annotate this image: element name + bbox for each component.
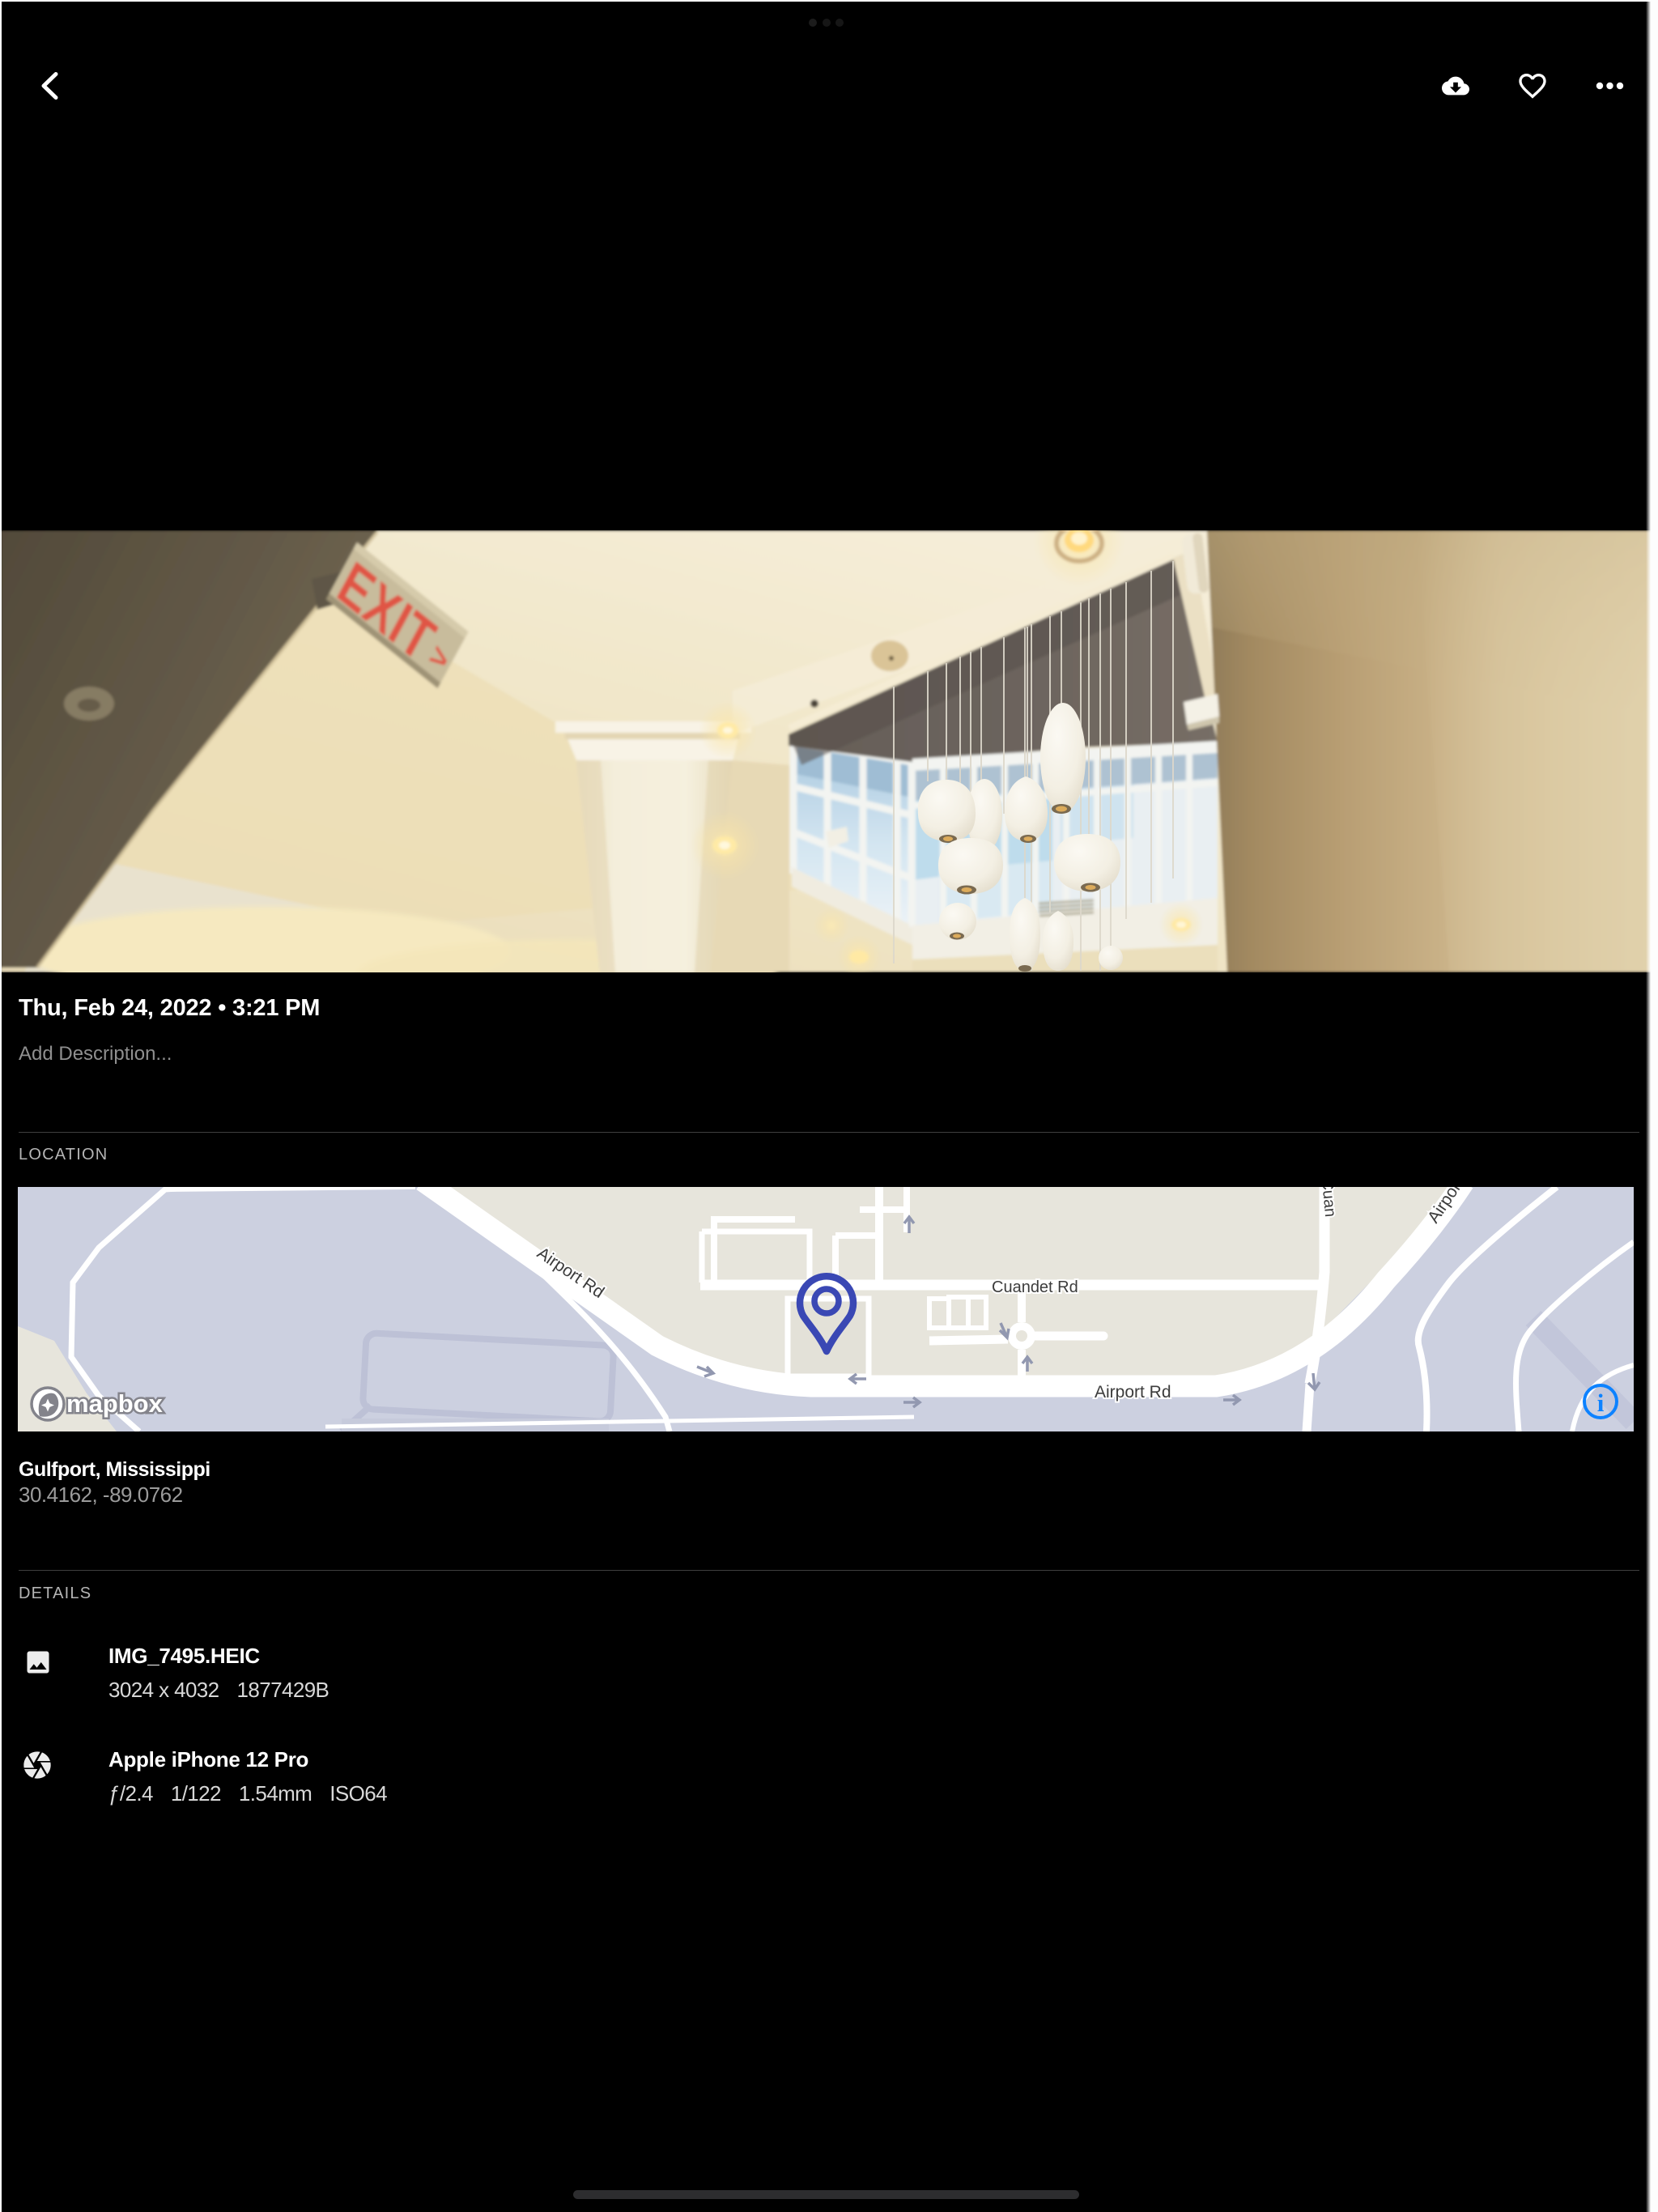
svg-text:Cuan: Cuan [1318, 1187, 1339, 1218]
svg-text:Cuandet Rd: Cuandet Rd [992, 1278, 1078, 1296]
svg-text:i: i [1597, 1389, 1605, 1417]
svg-text:Airport Rd: Airport Rd [1095, 1383, 1171, 1402]
svg-text:mapbox: mapbox [66, 1389, 164, 1418]
